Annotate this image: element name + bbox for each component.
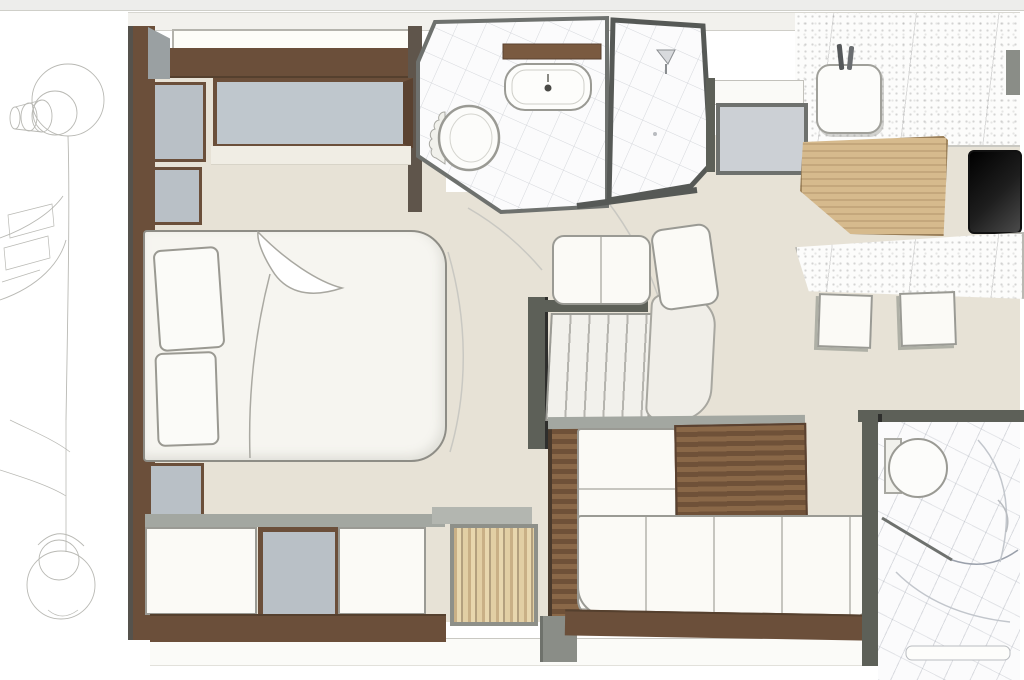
cooktop — [968, 150, 1022, 234]
galley-sink — [816, 64, 882, 134]
companionway-wall — [706, 78, 715, 172]
stair-landing — [645, 293, 718, 422]
master-aft-wall — [150, 614, 446, 642]
headboard-panel — [213, 78, 413, 148]
hanging-locker — [450, 524, 538, 626]
sheet-fold — [240, 226, 360, 466]
stair-cabinet-a — [552, 235, 651, 305]
salon-aft-wall — [565, 609, 867, 640]
master-corner-cabinet — [148, 27, 170, 79]
hull-bottom-band — [150, 638, 868, 666]
yacht-floorplan — [0, 0, 1024, 680]
deck-hatch — [716, 103, 808, 175]
basin-faucet-icon — [545, 85, 552, 92]
master-top-wall — [168, 48, 412, 78]
guest-bath-top-wall — [858, 410, 1024, 422]
dresser-left — [145, 527, 257, 615]
guest-toilet — [888, 438, 948, 498]
page-top-strip — [0, 0, 1024, 11]
aft-furniture-top-edge — [145, 514, 445, 527]
pillow-bottom — [154, 351, 219, 447]
wood-sideboard — [674, 423, 808, 521]
stair-cabinet-b — [650, 222, 721, 312]
sofa-seat-section — [577, 515, 867, 617]
shower-stall — [609, 20, 711, 200]
wardrobe-panel-a — [152, 82, 206, 162]
stair-wall-vert — [528, 297, 548, 449]
wash-shelf — [503, 44, 601, 59]
pillow-top — [153, 246, 226, 352]
vanity-mirror — [258, 527, 340, 627]
wardrobe-panel-b — [152, 167, 202, 225]
bar-stool-2 — [899, 291, 957, 347]
bar-stool-1 — [817, 293, 873, 349]
headboard-shelf — [211, 146, 411, 165]
companionway-white-band — [712, 80, 804, 105]
toilet — [439, 106, 499, 170]
dresser-right — [338, 527, 426, 615]
bathroom-and-shower — [405, 14, 720, 234]
locker-top-wall — [432, 507, 532, 524]
staircase — [545, 313, 655, 421]
bow-windlass-sketch-icon — [0, 0, 128, 680]
stbd-wall-segment — [1006, 50, 1020, 95]
